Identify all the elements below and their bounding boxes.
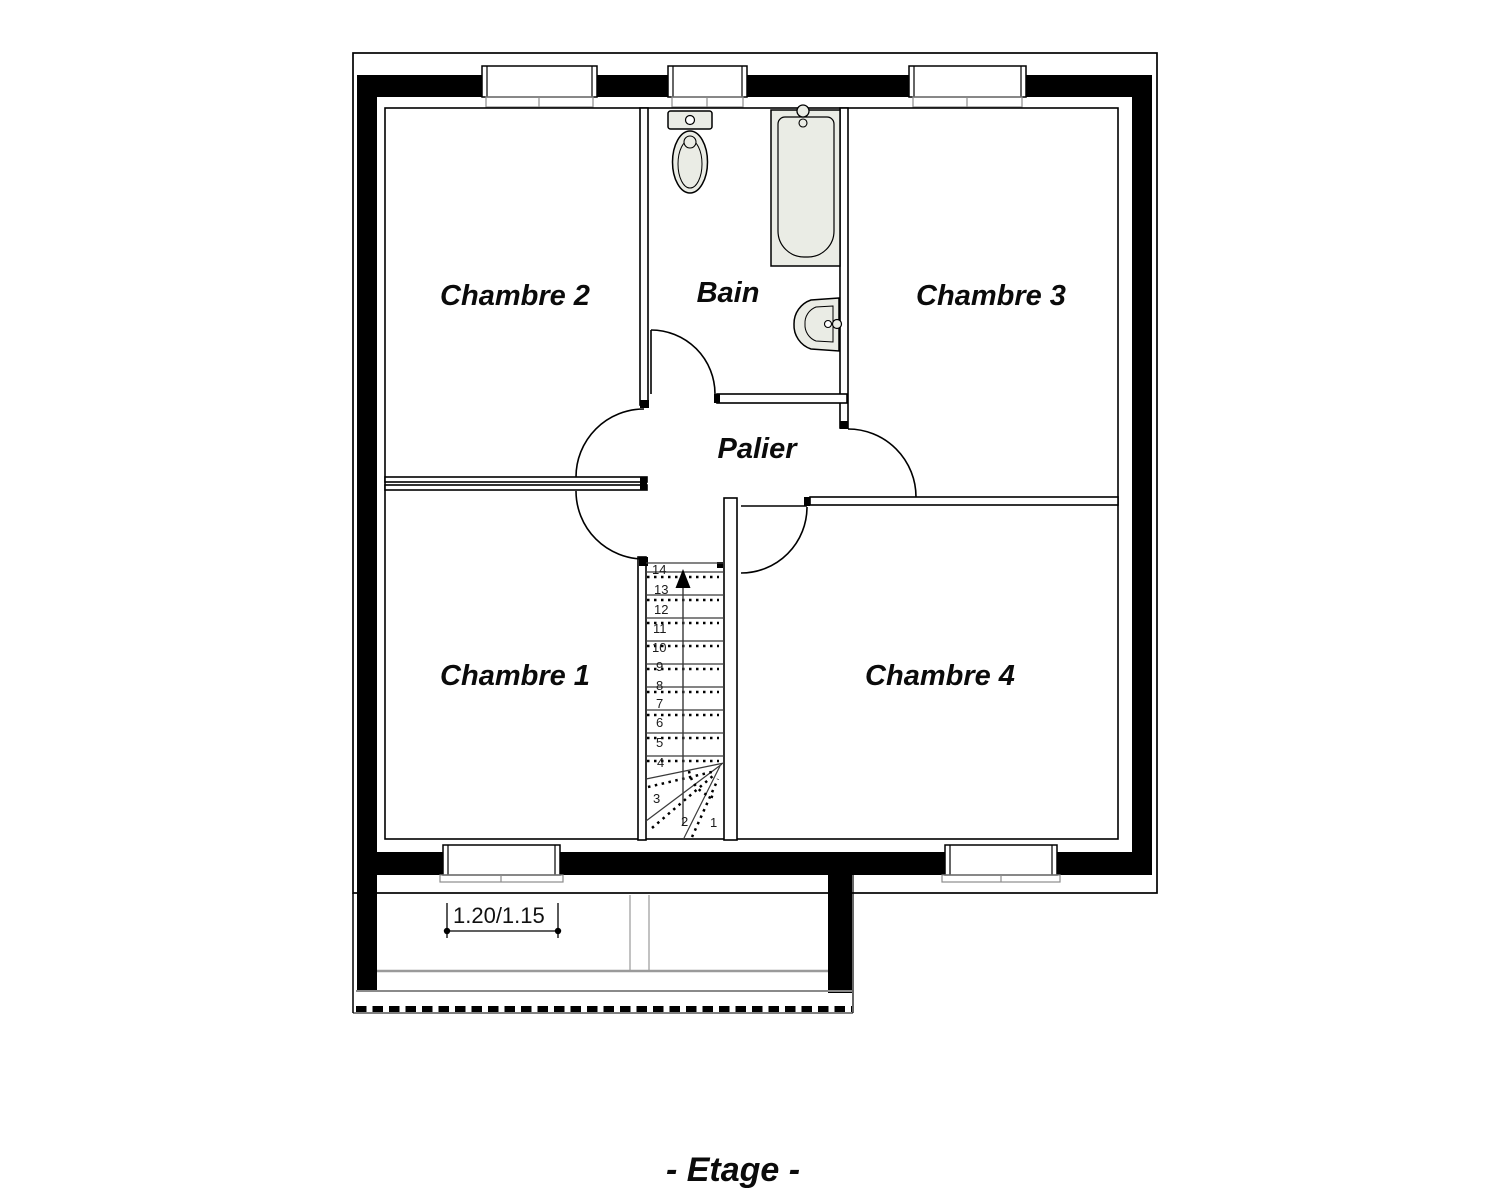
balcony-right-pillar xyxy=(828,873,852,993)
step-label: 9 xyxy=(656,659,663,674)
staircase: 1 2 3 4 5 6 7 8 9 10 11 12 13 14 xyxy=(646,562,724,838)
bathtub-icon xyxy=(771,105,840,266)
inner-wall-face xyxy=(385,108,1118,839)
wall-stair-left xyxy=(638,557,646,840)
wall-chambre1-chambre2-b xyxy=(385,485,647,490)
window-chambre3 xyxy=(909,63,1026,108)
window-chambre1 xyxy=(440,841,563,883)
outer-frame xyxy=(353,53,1157,893)
step-label: 11 xyxy=(653,621,667,636)
page-title: - Etage - xyxy=(666,1151,800,1189)
dimension-label: 1.20/1.15 xyxy=(453,903,545,928)
step-label: 5 xyxy=(656,735,663,750)
step-label: 6 xyxy=(656,715,663,730)
step-label: 2 xyxy=(681,814,688,829)
door-chambre2 xyxy=(576,409,644,477)
exterior-wall xyxy=(357,75,1152,875)
step-label: 7 xyxy=(656,696,663,711)
wall-bain-chambre3 xyxy=(840,108,848,428)
room-label-bain: Bain xyxy=(697,277,760,309)
room-label-chambre3: Chambre 3 xyxy=(916,280,1066,312)
door-bain xyxy=(651,330,715,394)
step-label: 10 xyxy=(652,640,666,655)
room-label-chambre2: Chambre 2 xyxy=(440,280,590,312)
room-label-chambre1: Chambre 1 xyxy=(440,660,590,692)
step-label: 3 xyxy=(653,791,660,806)
left-wall-extension xyxy=(357,875,377,990)
sink-icon xyxy=(794,298,842,351)
dimension-annotation: 1.20/1.15 xyxy=(444,903,561,938)
room-label-palier: Palier xyxy=(718,433,799,465)
stair-up-arrow xyxy=(676,569,691,826)
door-chambre3 xyxy=(848,429,916,497)
floor-plan-page: 1 2 3 4 5 6 7 8 9 10 11 12 13 14 xyxy=(0,0,1500,1200)
step-label: 8 xyxy=(656,678,663,693)
window-bain xyxy=(668,63,747,108)
balcony-annex xyxy=(353,873,853,1013)
wall-chambre2-bain xyxy=(640,108,648,405)
floor-plan-svg: 1 2 3 4 5 6 7 8 9 10 11 12 13 14 xyxy=(0,0,1500,1200)
wall-stair-right xyxy=(724,498,737,840)
step-label: 13 xyxy=(654,582,668,597)
wall-chambre3-chambre4 xyxy=(810,497,1118,505)
toilet-icon xyxy=(668,111,712,193)
wall-chambre1-chambre2-a xyxy=(385,477,647,482)
step-label: 1 xyxy=(710,815,717,830)
room-label-chambre4: Chambre 4 xyxy=(865,660,1015,692)
window-chambre2 xyxy=(482,63,597,108)
door-chambre1 xyxy=(576,491,644,559)
window-chambre4 xyxy=(942,841,1060,883)
door-chambre4 xyxy=(741,506,807,573)
step-label: 4 xyxy=(657,755,664,770)
wall-bain-south xyxy=(717,394,847,403)
step-label: 14 xyxy=(652,562,666,577)
step-label: 12 xyxy=(654,602,668,617)
door-jambs xyxy=(639,394,848,568)
